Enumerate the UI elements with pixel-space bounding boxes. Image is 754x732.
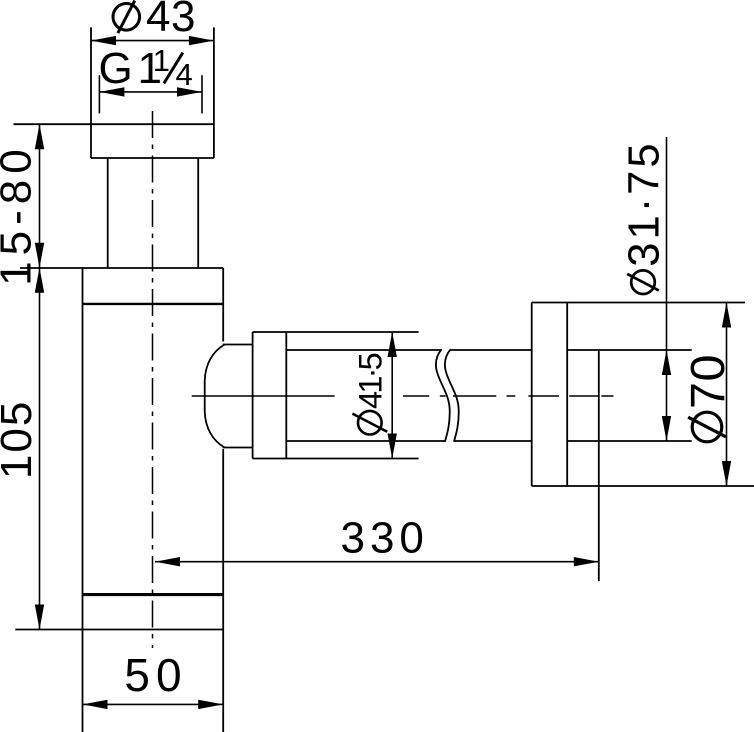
svg-text:15-80: 15-80 [0,143,40,286]
svg-text:31·75: 31·75 [620,140,668,266]
svg-text:41·5: 41·5 [352,353,388,409]
svg-text:G: G [99,44,133,93]
svg-text:50: 50 [124,649,187,701]
svg-text:105: 105 [0,400,41,479]
svg-text:1: 1 [153,43,170,78]
svg-text:330: 330 [340,513,428,562]
svg-text:70: 70 [681,354,735,409]
svg-text:4: 4 [176,57,193,92]
svg-text:43: 43 [146,0,196,41]
